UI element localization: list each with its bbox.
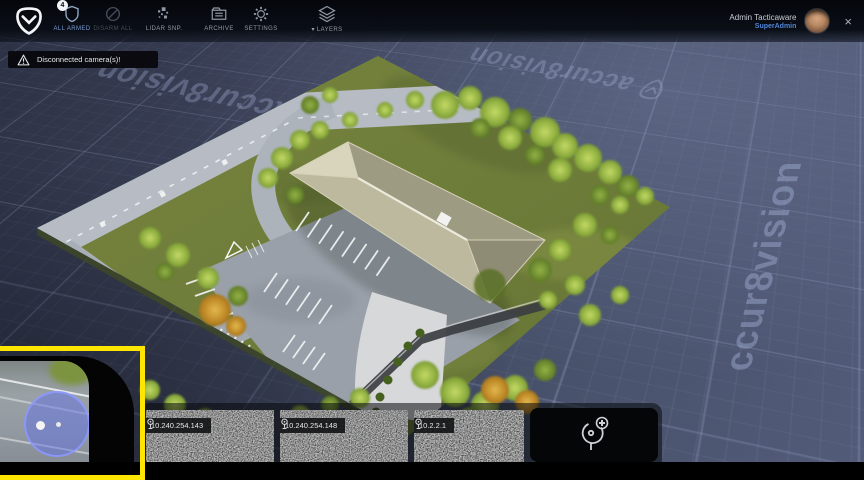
camera-label: 10.240.254.143 (146, 418, 211, 433)
layers-icon (317, 4, 337, 24)
camera-minimap[interactable] (0, 356, 134, 462)
disconnected-cameras-alert[interactable]: Disconnected camera(s)! (8, 51, 158, 68)
app-window: accur8vision accur8vision ccur8vision (0, 0, 864, 462)
minimap-camera-view (0, 361, 89, 462)
gear-icon (251, 4, 271, 24)
lidar-pointcloud-icon (154, 4, 174, 24)
warning-triangle-icon (17, 54, 30, 66)
alert-text: Disconnected camera(s)! (37, 55, 120, 64)
user-name: Admin Tacticaware (729, 13, 796, 22)
camera-thumbnail[interactable]: 10.240.254.143 (146, 410, 274, 462)
minimap-trees (49, 361, 89, 385)
user-role: SuperAdmin (755, 23, 797, 30)
camera-ip: 10.2.2.1 (419, 421, 446, 430)
camera-thumbnail-strip: 10.240.254.143 10.240.254.148 10.2.2.1 (140, 403, 662, 462)
camera-label: 10.240.254.148 (280, 418, 345, 433)
detected-object-dot (36, 421, 45, 430)
camera-thumbnail[interactable]: 10.240.254.148 (280, 410, 408, 462)
add-camera-button[interactable] (530, 408, 658, 462)
shield-armed-icon: 4 (62, 4, 82, 24)
lidar-snap-button[interactable]: LIDAR SNP. (135, 4, 193, 40)
layers-button[interactable]: ▾LAYERS (298, 4, 356, 40)
camera-location-pin-icon (146, 418, 155, 430)
app-logo[interactable] (13, 5, 45, 37)
armed-count-badge: 4 (57, 0, 68, 11)
settings-button[interactable]: SETTINGS (232, 4, 290, 40)
camera-ip: 10.240.254.143 (151, 421, 203, 430)
camera-location-pin-icon (414, 418, 423, 430)
close-icon[interactable]: × (838, 13, 858, 30)
archive-folder-icon (209, 4, 229, 24)
disarm-all-button[interactable]: DISARM ALL (84, 4, 142, 40)
user-account-area: Admin Tacticaware SuperAdmin × (729, 0, 858, 42)
logo-shield-icon (13, 5, 45, 37)
avatar[interactable] (804, 8, 830, 34)
toolbar-label: ▾LAYERS (311, 26, 342, 33)
chevron-down-icon: ▾ (311, 27, 314, 33)
detected-object-dot (56, 422, 61, 427)
camera-plus-icon (577, 416, 611, 454)
shield-disarm-icon (103, 4, 123, 24)
toolbar-label: DISARM ALL (93, 26, 132, 32)
camera-thumbnail[interactable]: 10.2.2.1 (414, 410, 524, 462)
camera-location-pin-icon (280, 418, 289, 430)
toolbar-label: ARCHIVE (204, 26, 233, 32)
camera-ip: 10.240.254.148 (285, 421, 337, 430)
toolbar-label: SETTINGS (244, 26, 277, 32)
camera-label: 10.2.2.1 (414, 418, 454, 433)
toolbar-label: LIDAR SNP. (146, 26, 183, 32)
